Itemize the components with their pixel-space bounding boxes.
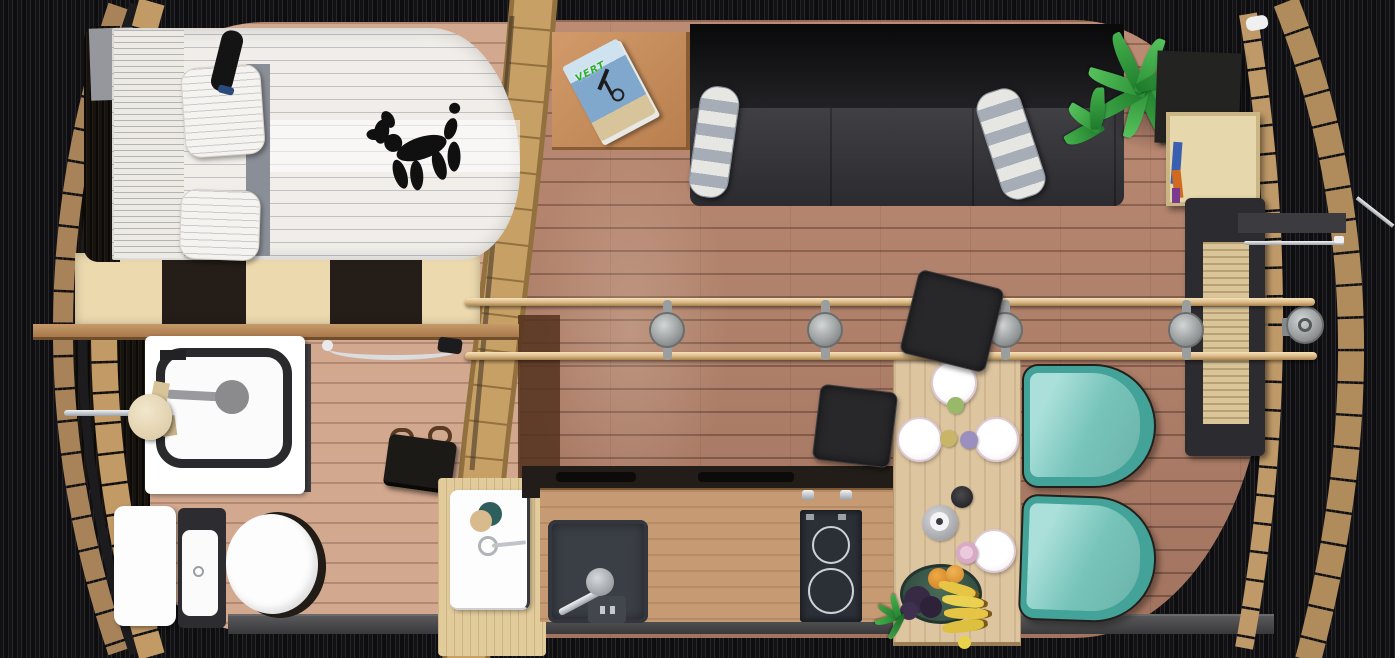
balloon-dog-tail [442,116,460,141]
book-spine [1172,188,1180,203]
bed-head-strip [114,30,184,258]
right-wall-rail [1244,241,1344,245]
rail-end-cap [1334,236,1344,243]
teal-tub-chair [1018,494,1158,625]
chair-seat [1026,503,1142,613]
towel-bar-end [322,340,333,351]
towel-roll [128,394,172,440]
drawer-handle [698,472,794,482]
balloon-dog-leg [448,142,461,172]
sink-control [600,606,605,614]
kettle-knob [936,518,943,525]
turnbuckle [649,312,685,348]
banana [944,608,992,620]
flush-button [193,566,204,577]
cup-purple [960,431,978,449]
checkered-headboard-divider [75,253,480,325]
magazine-cover: VERT [562,38,656,141]
wall-lamp [1286,306,1324,344]
balloon-dog-tail-tip [448,102,461,115]
shower-head [215,380,249,414]
cup-black [951,486,973,508]
wall-lamp-lens [1298,318,1312,332]
towel-bar-mount [437,336,463,354]
plate [974,417,1019,462]
right-wall-beam [1238,213,1346,233]
cooktop-hinge [802,490,814,500]
shower-fitting [160,350,186,360]
cup-green [947,397,964,414]
sofa-backrest [690,24,1124,112]
sofa-seat [690,108,1124,206]
balloon-dog-figurine [374,95,481,206]
two-burner-cooktop [800,510,862,622]
drawer-handle [556,472,636,482]
plywood-box-shelf [1166,112,1260,206]
lemon [958,636,971,649]
burner-ring [812,526,850,564]
washbasin [450,490,530,610]
turnbuckle [807,312,843,348]
barrel-house-floorplan: VERT [0,0,1395,658]
balloon-dog-leg [409,160,424,191]
balloon-dog-leg [389,158,411,191]
kitchen-sink [548,520,648,623]
bike-wheel-graphic [609,86,627,104]
turnbuckle [1168,312,1204,348]
grapes [920,596,942,618]
burner-ring [808,568,854,614]
balloon-dog-snout [367,129,383,140]
plate [897,417,942,462]
desk-slatted-top [1203,242,1249,424]
toilet-cistern [178,508,226,628]
teal-tub-chair [1022,364,1156,488]
pillow [179,189,261,262]
cup-yellow [940,430,957,447]
dark-stool [812,384,899,469]
sink-control [610,606,615,614]
kettle [922,505,958,541]
hall-shadow [518,315,560,480]
fruit-bowl [884,556,1004,652]
cooktop-knob [806,514,814,520]
side-table: VERT [552,32,690,150]
sink-front-section [588,596,626,623]
chair-seat [1030,373,1140,477]
soap-bar [470,510,492,532]
cooktop-knob [838,514,846,520]
faucet-base [586,568,614,596]
toilet-tank-lid [114,506,176,626]
cooktop-hinge [840,490,852,500]
